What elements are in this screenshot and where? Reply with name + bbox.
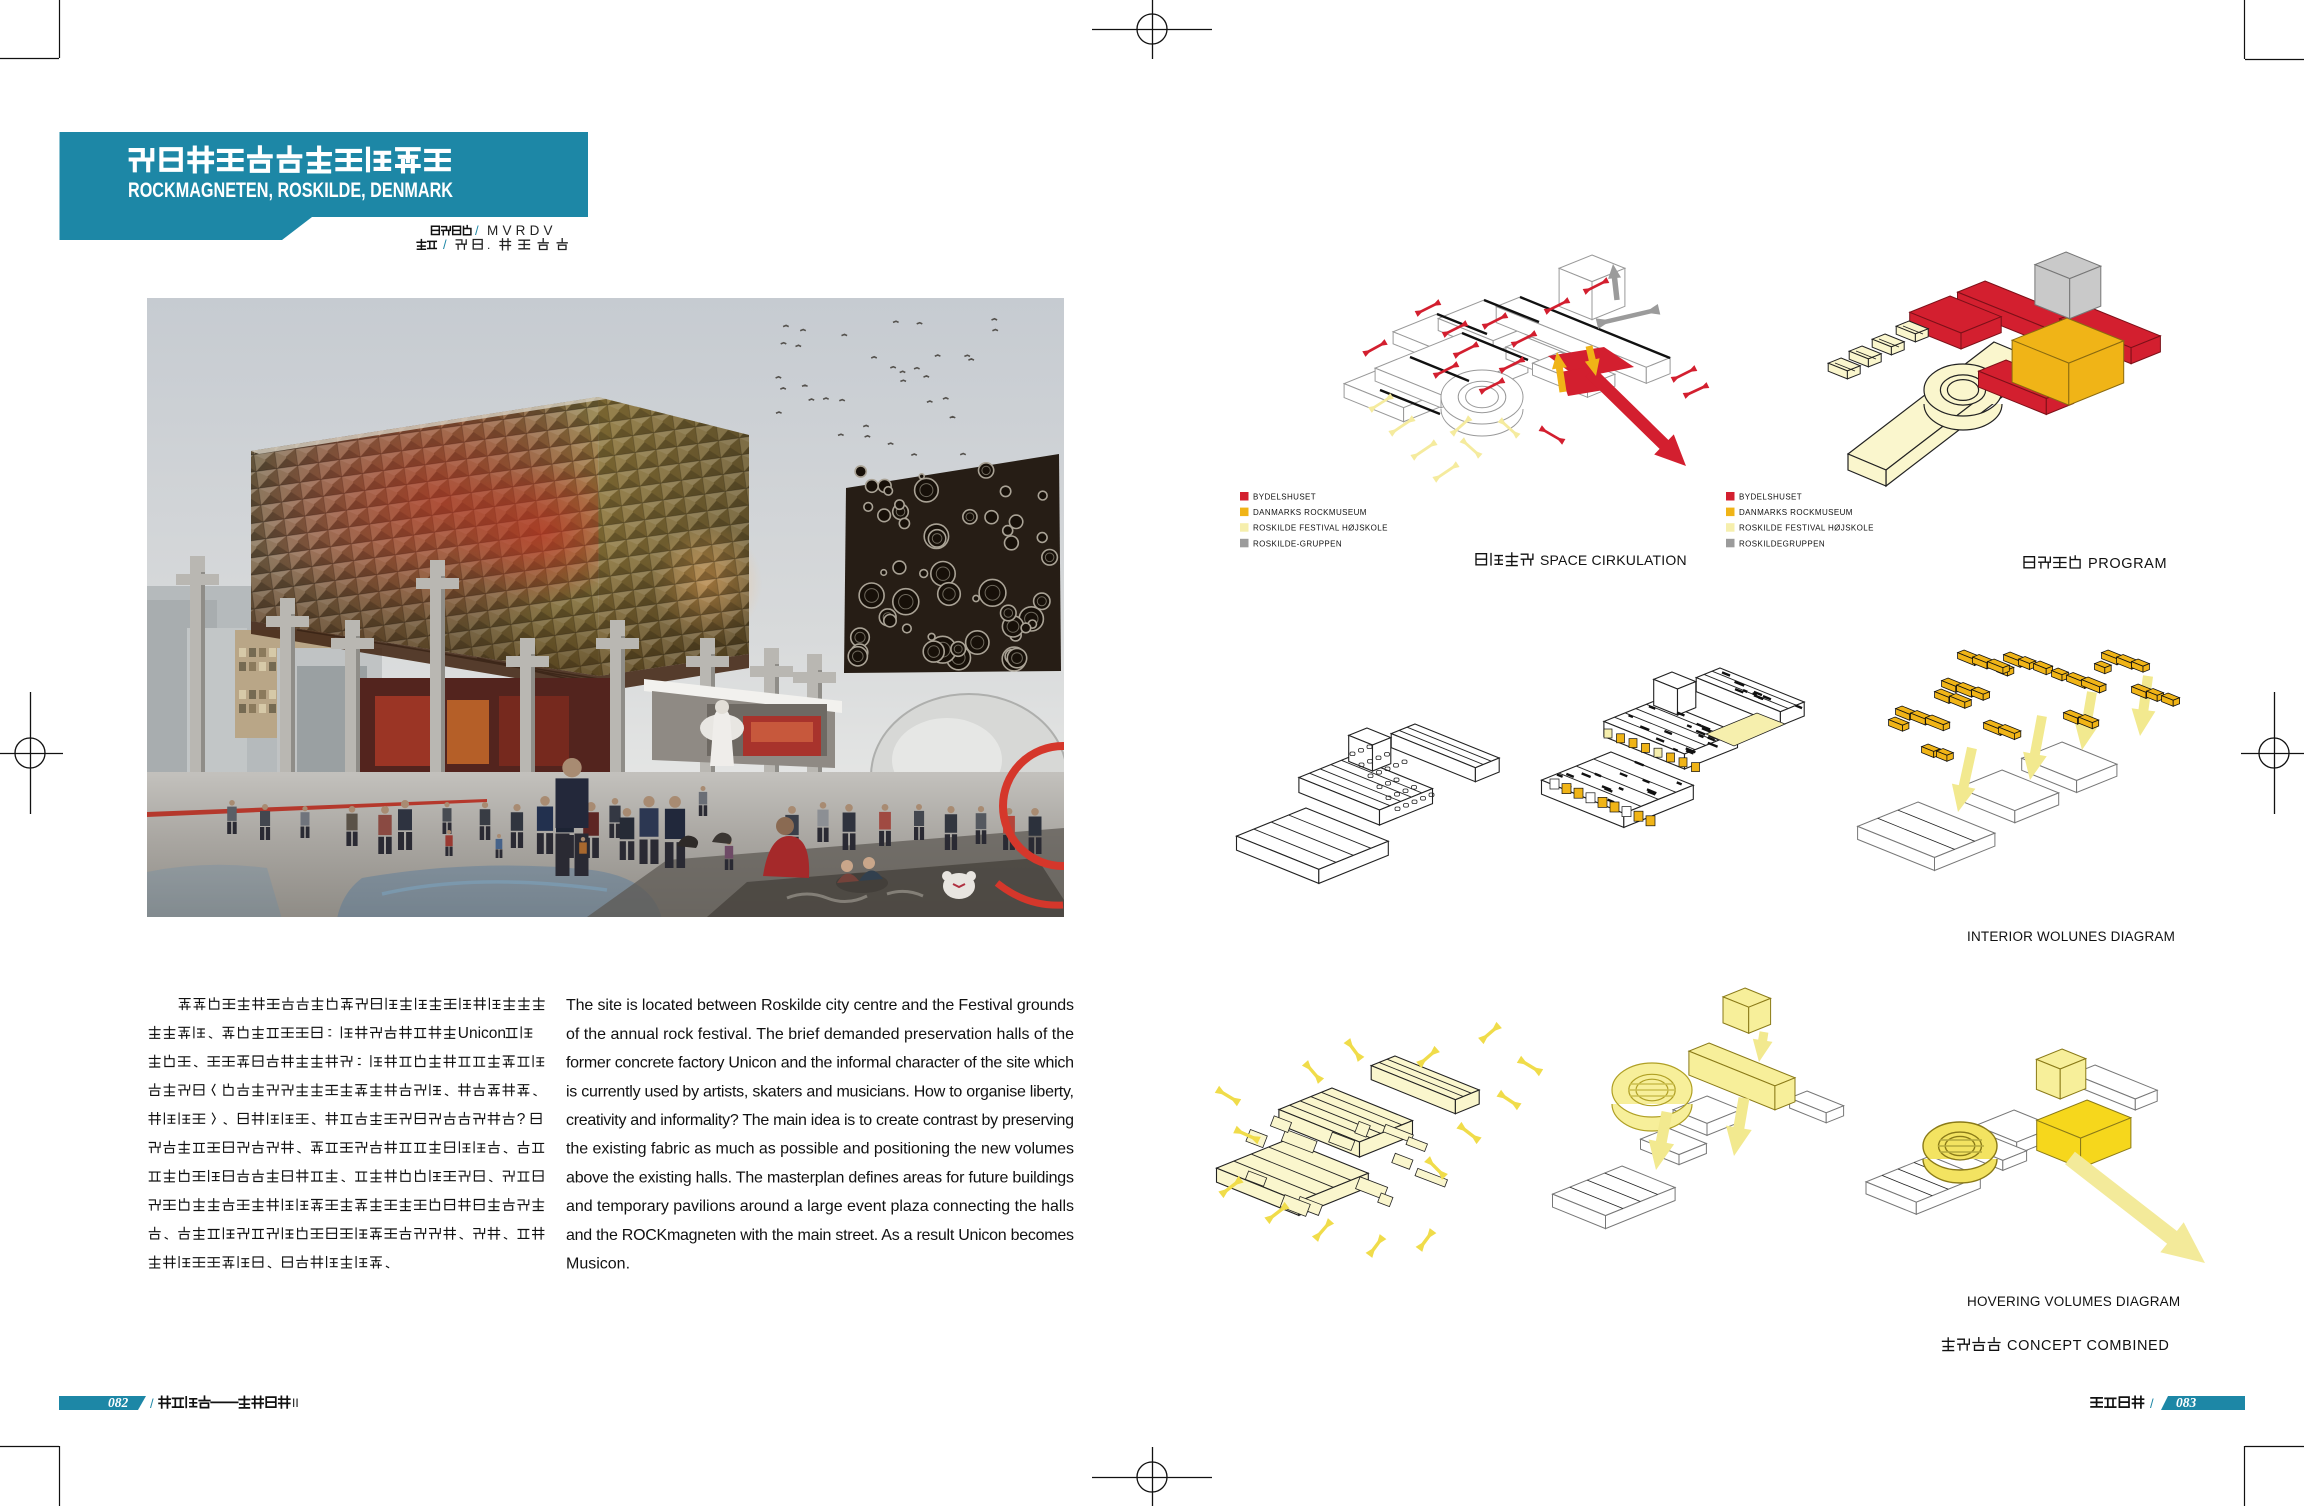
- svg-text:ROSKILDE FESTIVAL HØJSKOLE: ROSKILDE FESTIVAL HØJSKOLE: [1739, 524, 1874, 533]
- svg-text:083: 083: [2176, 1395, 2197, 1410]
- svg-text:SPACE CIRKULATION: SPACE CIRKULATION: [1540, 552, 1687, 568]
- svg-text:of the annual rock festival. T: of the annual rock festival. The brief d…: [566, 1026, 1074, 1043]
- svg-text:ROSKILDEGRUPPEN: ROSKILDEGRUPPEN: [1739, 539, 1825, 548]
- svg-text:MVRDV: MVRDV: [487, 223, 557, 238]
- svg-text:ROSKILDE-GRUPPEN: ROSKILDE-GRUPPEN: [1253, 539, 1342, 548]
- svg-text:BYDELSHUSET: BYDELSHUSET: [1739, 493, 1802, 502]
- svg-text:.: .: [487, 238, 490, 252]
- svg-text:ROCKMAGNETEN, ROSKILDE, DENMAR: ROCKMAGNETEN, ROSKILDE, DENMARK: [128, 179, 453, 202]
- svg-text:the existing fabric as much as: the existing fabric as much as possible …: [566, 1141, 1074, 1158]
- svg-text:/: /: [443, 237, 447, 252]
- svg-text:Musicon.: Musicon.: [566, 1256, 630, 1273]
- svg-text:INTERIOR WOLUNES DIAGRAM: INTERIOR WOLUNES DIAGRAM: [1967, 929, 2175, 944]
- svg-text:creativity and informality? Th: creativity and informality? The main ide…: [566, 1112, 1074, 1129]
- svg-text:HOVERING VOLUMES DIAGRAM: HOVERING VOLUMES DIAGRAM: [1967, 1294, 2180, 1309]
- svg-text:DANMARKS ROCKMUSEUM: DANMARKS ROCKMUSEUM: [1253, 508, 1367, 517]
- svg-text:Unicon: Unicon: [458, 1025, 506, 1042]
- svg-text:above the existing halls. The: above the existing halls. The masterplan…: [566, 1169, 1074, 1186]
- svg-text:?: ?: [517, 1111, 526, 1128]
- svg-text:/: /: [475, 223, 479, 238]
- svg-text:PROGRAM: PROGRAM: [2088, 556, 2167, 572]
- svg-text:ROSKILDE FESTIVAL HØJSKOLE: ROSKILDE FESTIVAL HØJSKOLE: [1253, 524, 1388, 533]
- svg-text:and the ROCKmagneten with the: and the ROCKmagneten with the main stree…: [566, 1227, 1074, 1244]
- svg-text:and temporary pavilions around: and temporary pavilions around a large e…: [566, 1198, 1074, 1215]
- svg-text:/: /: [150, 1396, 154, 1411]
- svg-text:CONCEPT COMBINED: CONCEPT COMBINED: [2007, 1338, 2169, 1354]
- svg-text:082: 082: [108, 1395, 129, 1410]
- svg-text:former concrete factory Unicon: former concrete factory Unicon and the i…: [566, 1055, 1074, 1072]
- svg-text:/: /: [2150, 1396, 2154, 1411]
- svg-text:is currently used by artists,: is currently used by artists, skaters an…: [566, 1083, 1074, 1100]
- svg-text:The site is located between Ro: The site is located between Roskilde cit…: [566, 997, 1074, 1014]
- svg-text:DANMARKS ROCKMUSEUM: DANMARKS ROCKMUSEUM: [1739, 508, 1853, 517]
- svg-text:II: II: [292, 1396, 299, 1410]
- svg-text:BYDELSHUSET: BYDELSHUSET: [1253, 493, 1316, 502]
